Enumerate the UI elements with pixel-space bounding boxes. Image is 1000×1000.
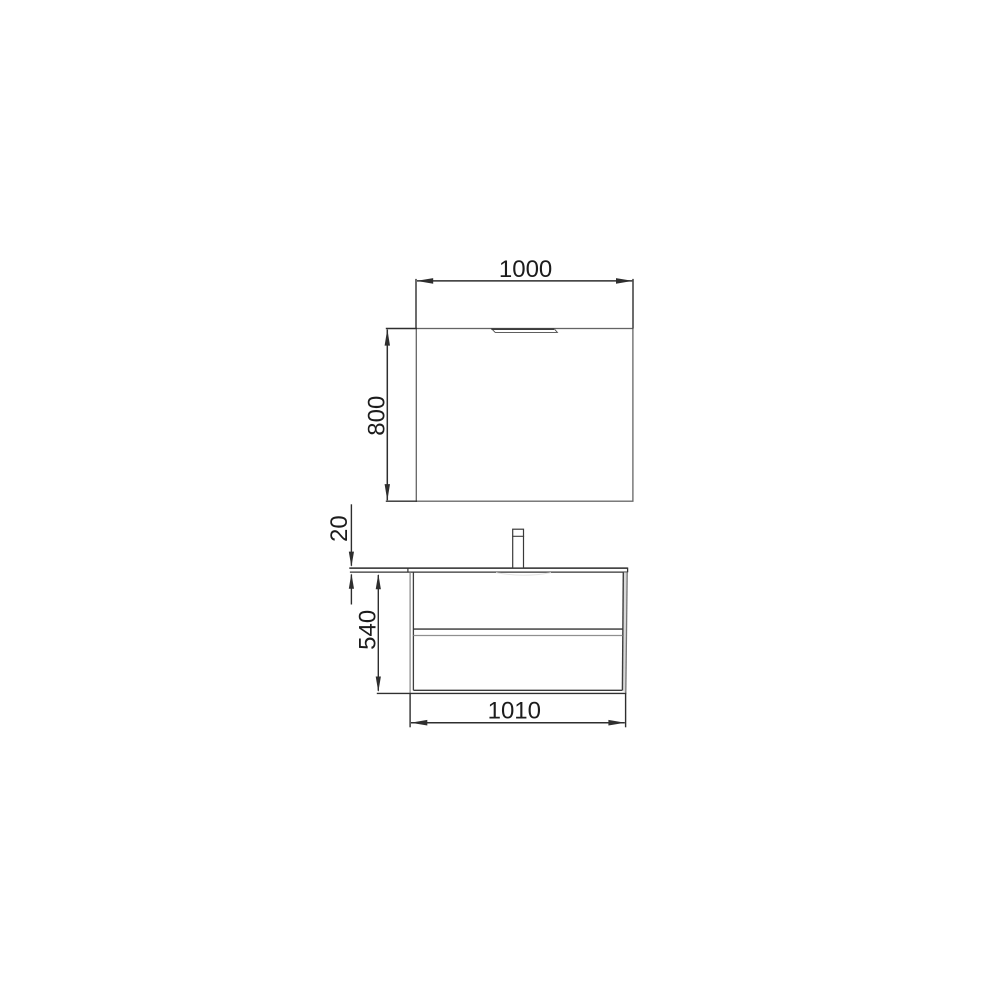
svg-text:1000: 1000 [499, 256, 552, 283]
svg-text:540: 540 [354, 610, 381, 650]
svg-text:800: 800 [363, 396, 390, 436]
svg-text:1010: 1010 [488, 697, 541, 724]
svg-text:20: 20 [326, 515, 353, 542]
